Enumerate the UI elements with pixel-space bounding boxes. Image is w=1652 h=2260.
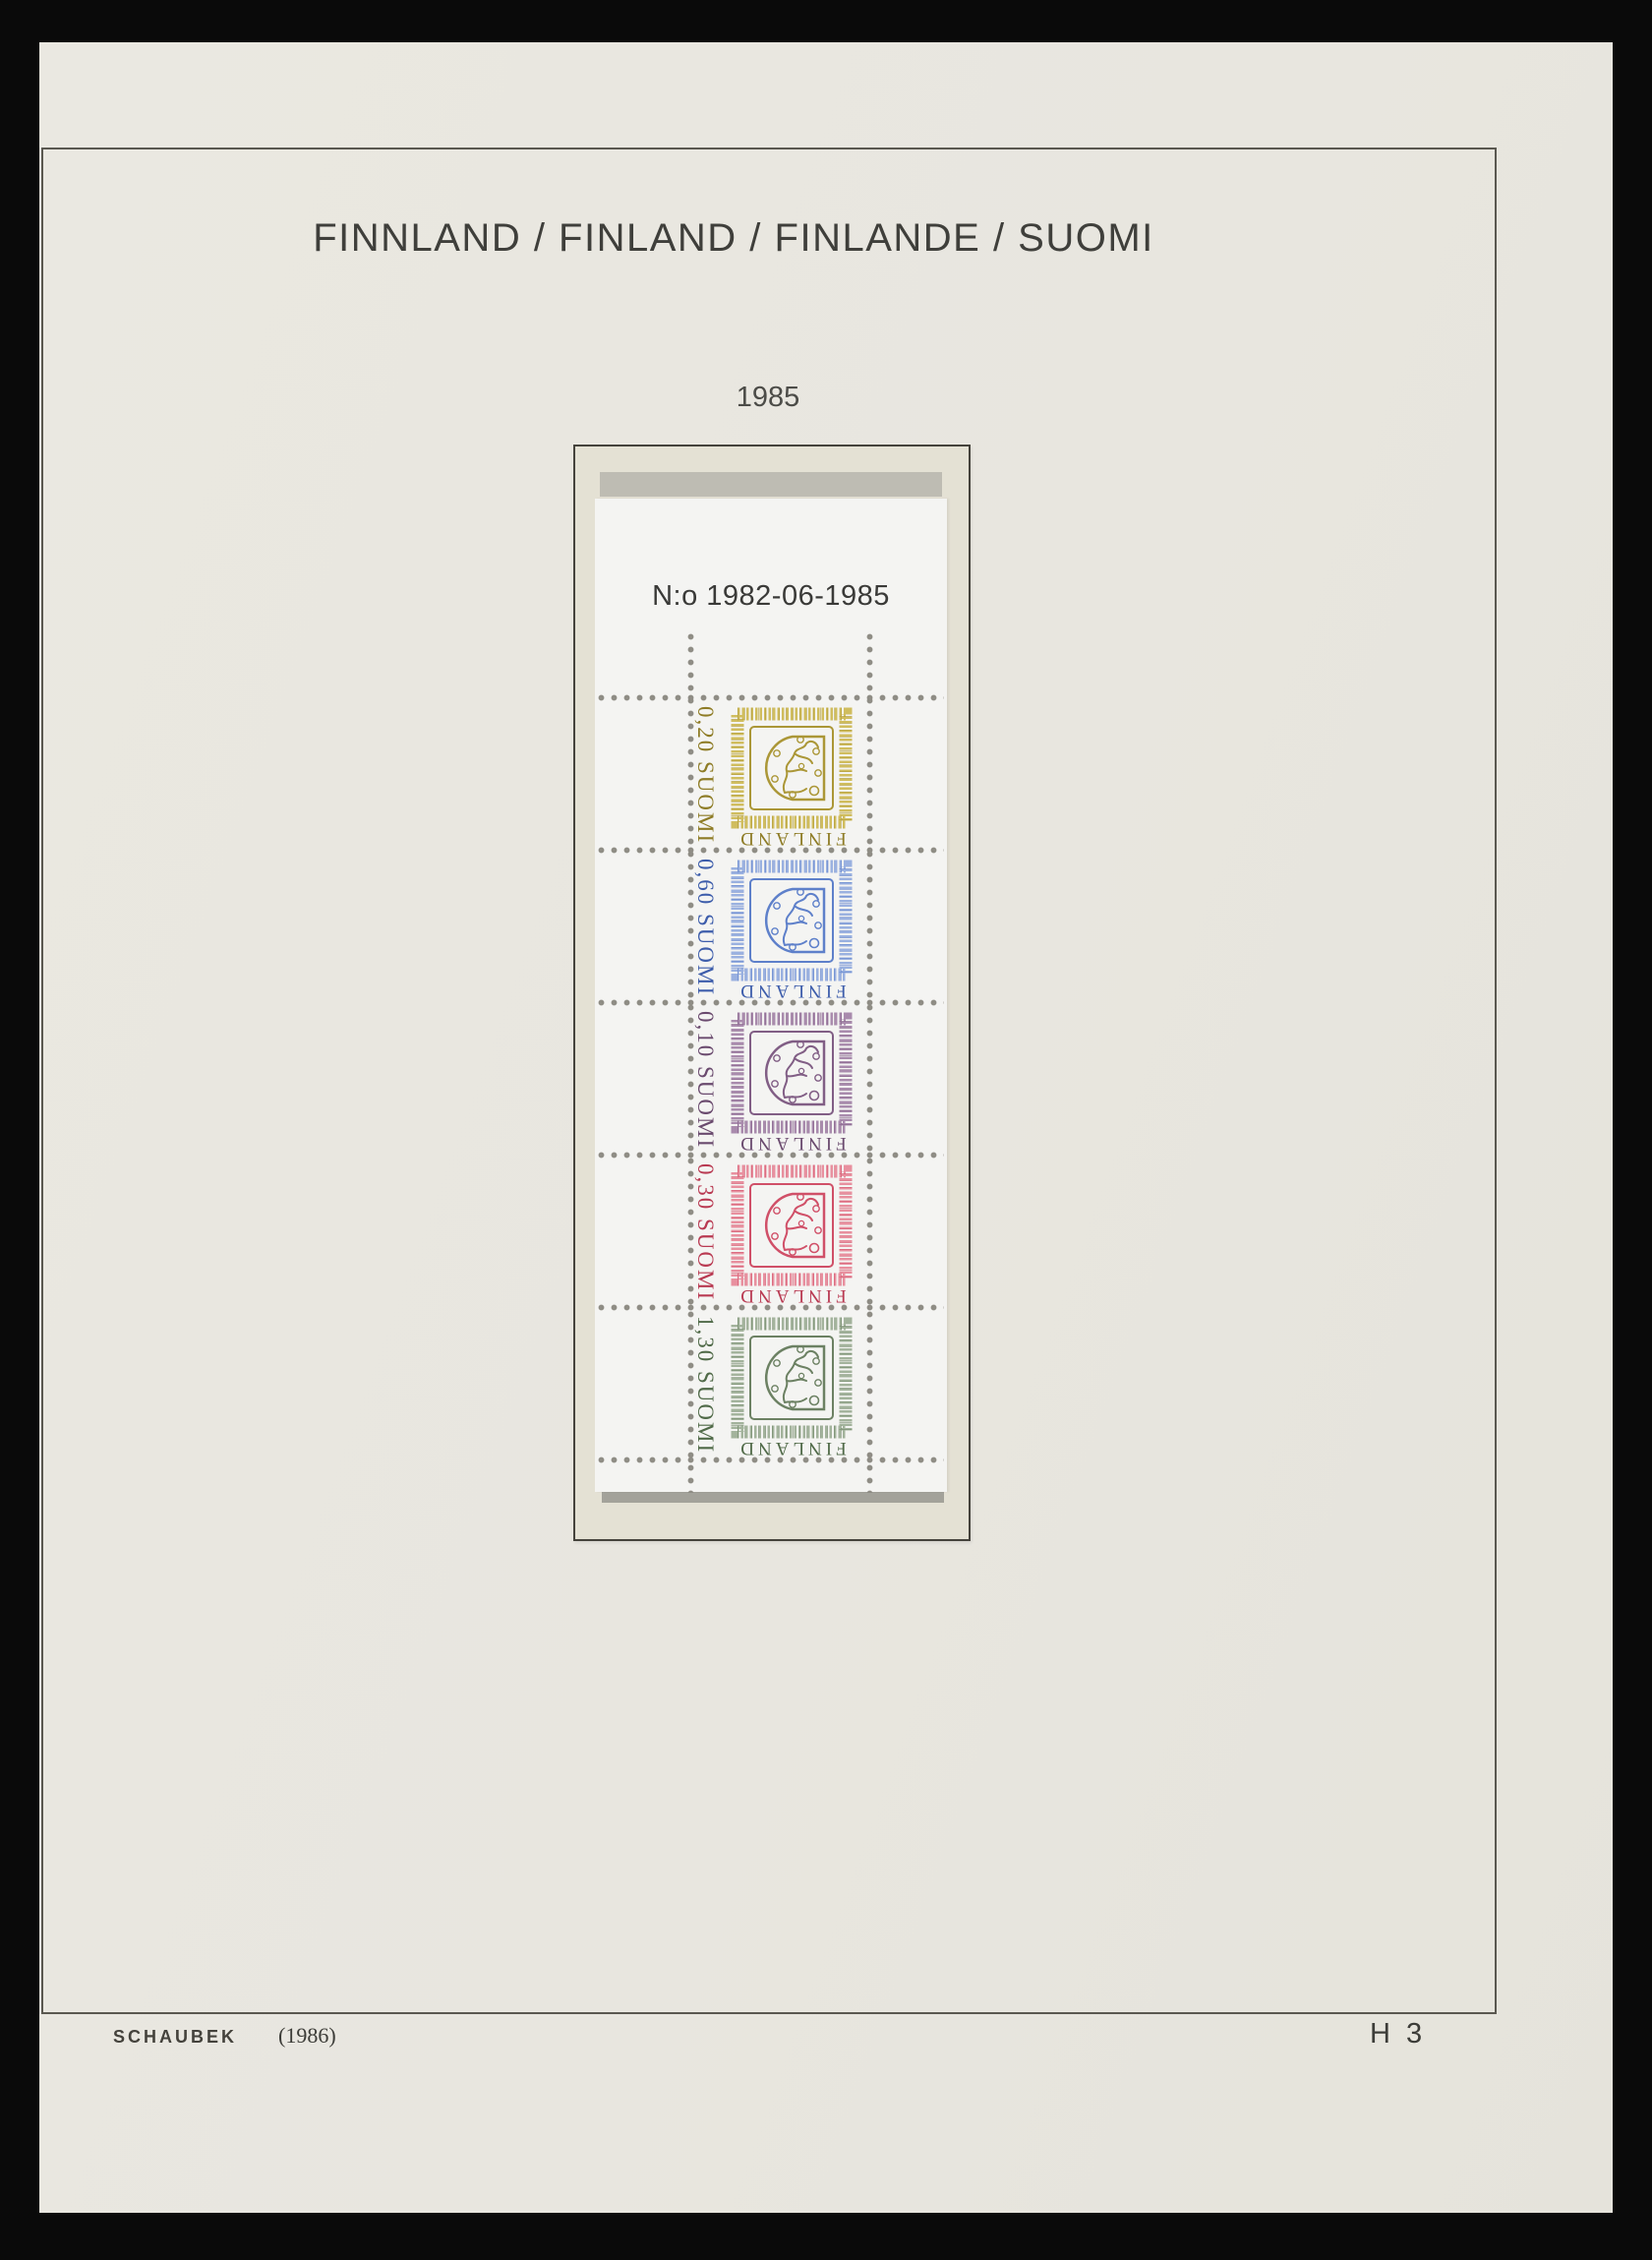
stamp-value-suomi: 0,20SUOMI bbox=[692, 706, 718, 844]
stamp-country-suomi: SUOMI bbox=[693, 753, 718, 844]
booklet-tab-strip bbox=[600, 472, 942, 497]
publisher-label: SCHAUBEK bbox=[113, 2027, 237, 2048]
stamp-face-value: 0,10 bbox=[693, 1011, 718, 1058]
stamp-country-suomi: SUOMI bbox=[693, 1211, 718, 1301]
stamp: 0,10SUOMI FINLAND bbox=[690, 1003, 869, 1156]
stamp: 0,20SUOMI FINLAND bbox=[690, 698, 869, 851]
stamp-lion-emblem-icon bbox=[728, 704, 855, 832]
stamp-face-value: 1,30 bbox=[693, 1316, 718, 1363]
scanner-background: FINNLAND / FINLAND / FINLANDE / SUOMI 19… bbox=[0, 0, 1652, 2260]
stamp-lion-emblem-icon bbox=[728, 1314, 855, 1442]
stamp-country-suomi: SUOMI bbox=[693, 1363, 718, 1454]
page-title: FINNLAND / FINLAND / FINLANDE / SUOMI bbox=[39, 216, 1428, 261]
stamp-face-value: 0,30 bbox=[693, 1163, 718, 1211]
stamp: 0,60SUOMI FINLAND bbox=[690, 851, 869, 1003]
stamp-value-suomi: 0,10SUOMI bbox=[692, 1011, 718, 1149]
stamp-country-suomi: SUOMI bbox=[693, 906, 718, 996]
page-code: H 3 bbox=[1370, 2018, 1426, 2051]
stamp-lion-emblem-icon bbox=[728, 1161, 855, 1289]
stamp: 0,30SUOMI FINLAND bbox=[690, 1156, 869, 1308]
booklet-pane: N:o 1982-06-1985 0,20SUOMI bbox=[595, 499, 947, 1492]
stamp-value-suomi: 0,60SUOMI bbox=[692, 859, 718, 996]
stamp-value-suomi: 0,30SUOMI bbox=[692, 1163, 718, 1301]
year-label: 1985 bbox=[39, 382, 1497, 414]
stamp-country-suomi: SUOMI bbox=[693, 1058, 718, 1149]
stamp-mount: N:o 1982-06-1985 0,20SUOMI bbox=[573, 445, 971, 1541]
stamp-country-finland: FINLAND bbox=[728, 1437, 855, 1458]
stamp: 1,30SUOMI FINLAND bbox=[690, 1308, 869, 1460]
stamps-region: 0,20SUOMI FINLAND 0,60SUOMI bbox=[595, 499, 947, 1492]
edition-note: (1986) bbox=[278, 2023, 336, 2049]
stamp-face-value: 0,60 bbox=[693, 859, 718, 906]
stamp-lion-emblem-icon bbox=[728, 857, 855, 984]
stamp-country-finland: FINLAND bbox=[728, 1132, 855, 1154]
stamp-face-value: 0,20 bbox=[693, 706, 718, 753]
stamp-lion-emblem-icon bbox=[728, 1009, 855, 1137]
stamp-country-finland: FINLAND bbox=[728, 1284, 855, 1306]
stamp-value-suomi: 1,30SUOMI bbox=[692, 1316, 718, 1454]
stamp-country-finland: FINLAND bbox=[728, 827, 855, 849]
album-page: FINNLAND / FINLAND / FINLANDE / SUOMI 19… bbox=[39, 42, 1613, 2213]
booklet-bottom-shadow bbox=[602, 1492, 944, 1503]
stamp-country-finland: FINLAND bbox=[728, 980, 855, 1001]
